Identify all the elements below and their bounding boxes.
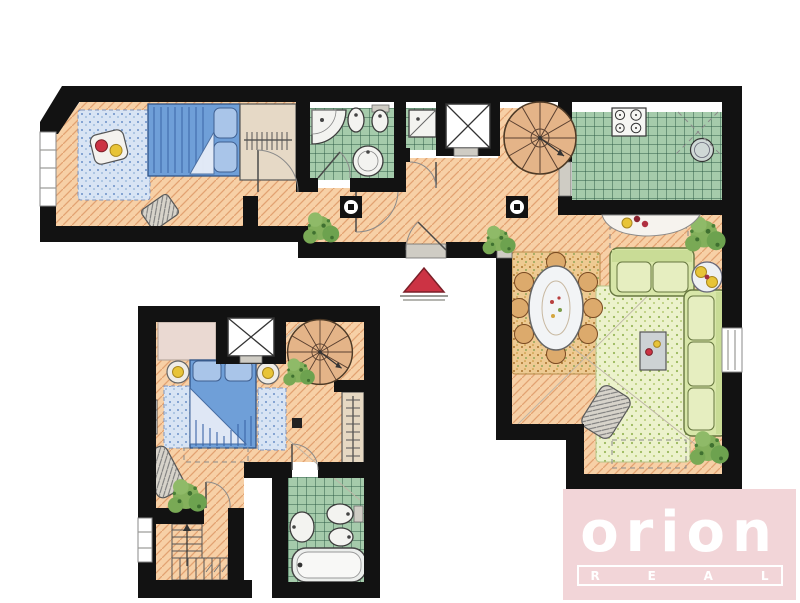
- living-window: [722, 328, 742, 372]
- bathtub: [292, 548, 366, 582]
- wall-bathroom-bottom-a: [296, 178, 318, 192]
- column: [340, 196, 362, 218]
- elevator: [216, 308, 286, 364]
- wall-kitchen-bottom: [558, 200, 740, 215]
- entrance-threshold: [406, 244, 446, 258]
- bedroom-window: [40, 132, 56, 206]
- wall-bathroom-top-b: [318, 462, 380, 478]
- toilet: [372, 105, 389, 132]
- wall-shower-sep: [394, 102, 406, 180]
- wall-bathroom-bottom-b: [350, 178, 406, 192]
- floor-socket: [292, 418, 302, 428]
- balcony-opening: [138, 518, 152, 562]
- nightstand: [257, 362, 279, 384]
- round-side-table: [692, 262, 722, 292]
- wall-hall-bottom: [298, 242, 406, 258]
- wall-bathroom-top-a: [244, 462, 292, 478]
- spiral-staircase: [504, 102, 576, 174]
- stair-corridor-floor: [156, 524, 228, 582]
- wall-right: [364, 306, 380, 598]
- corner-sofa: [684, 290, 728, 436]
- round-washbasin: [353, 146, 383, 176]
- nightstand: [167, 361, 189, 383]
- column: [506, 196, 528, 218]
- elevator: [436, 94, 500, 156]
- kitchen-sink: [691, 139, 714, 162]
- lower-floor-plan: [137, 306, 380, 598]
- toilet: [327, 504, 363, 524]
- stove: [612, 108, 646, 136]
- shower-stall: [409, 110, 436, 137]
- sofa: [610, 248, 694, 296]
- coffee-table: [640, 332, 666, 370]
- wall-dining-left: [496, 258, 512, 432]
- bedside-rug-left: [164, 386, 190, 448]
- wardrobe: [240, 104, 296, 180]
- logo-letter: L: [761, 569, 769, 583]
- wall-door-stub: [230, 508, 244, 524]
- bidet: [329, 528, 353, 546]
- logo-letter: R: [591, 569, 600, 583]
- wall-spiral-stub: [334, 380, 366, 392]
- floor-plan-image: orion R E A L: [0, 0, 800, 603]
- bidet: [348, 108, 364, 132]
- washbasin: [290, 512, 314, 542]
- wall-bathroom-left: [272, 478, 288, 598]
- wall-bathroom-bottom: [272, 582, 380, 598]
- wall-bedroom-bottom: [40, 226, 312, 242]
- logo-brand-text: orion: [580, 505, 779, 561]
- wardrobe: [342, 392, 364, 470]
- logo-letter: A: [704, 569, 713, 583]
- wall-shower-bottom: [394, 148, 410, 162]
- double-bed: [184, 360, 256, 462]
- wall-right: [722, 102, 742, 492]
- bedside-rug-right: [258, 388, 286, 450]
- double-bed: [148, 104, 240, 176]
- logo-real-box: R E A L: [577, 565, 783, 586]
- orion-logo: orion R E A L: [563, 489, 796, 600]
- doorway-floor: [204, 508, 230, 526]
- wall-door-stub: [243, 196, 258, 228]
- entrance-marker: [400, 268, 448, 300]
- logo-letter: E: [648, 569, 656, 583]
- closet: [158, 322, 216, 360]
- wall-top: [62, 86, 742, 102]
